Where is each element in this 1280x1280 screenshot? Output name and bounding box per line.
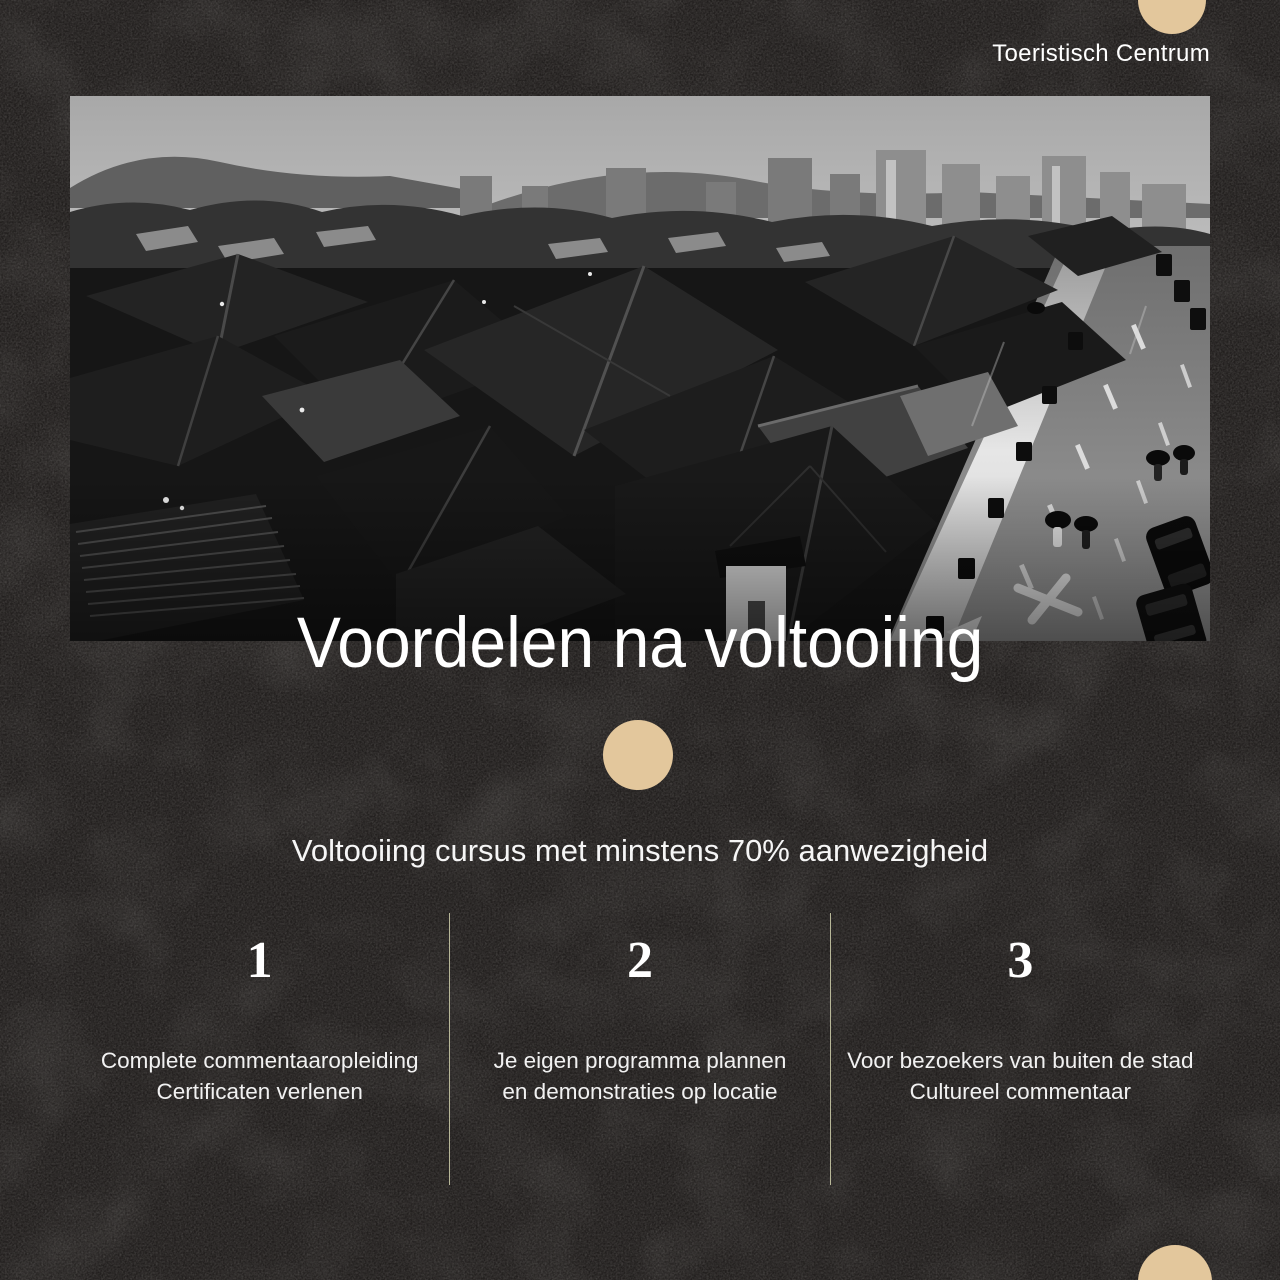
hanok-village-illustration bbox=[70, 96, 1210, 641]
page-title-text: Voordelen na voltooiing bbox=[297, 600, 984, 688]
benefit-line: en demonstraties op locatie bbox=[450, 1076, 829, 1107]
decorative-circle-top-right bbox=[1138, 0, 1206, 34]
benefit-number: 2 bbox=[450, 913, 829, 991]
brand-label: Toeristisch Centrum bbox=[992, 40, 1210, 68]
benefit-line: Je eigen programma plannen bbox=[450, 1045, 829, 1076]
subtitle: Voltooiing cursus met minstens 70% aanwe… bbox=[0, 830, 1280, 872]
decorative-circle-middle bbox=[603, 720, 673, 790]
benefit-description: Complete commentaaropleiding Certificate… bbox=[70, 1045, 449, 1107]
benefit-item-3: 3 Voor bezoekers van buiten de stad Cult… bbox=[831, 913, 1210, 1187]
benefit-number: 1 bbox=[70, 913, 449, 991]
benefit-description: Je eigen programma plannen en demonstrat… bbox=[450, 1045, 829, 1107]
slide: Toeristisch Centrum bbox=[0, 0, 1280, 1280]
column-divider bbox=[449, 913, 450, 1185]
benefits-row: 1 Complete commentaaropleiding Certifica… bbox=[70, 913, 1210, 1187]
benefit-item-2: 2 Je eigen programma plannen en demonstr… bbox=[450, 913, 829, 1187]
benefit-line: Certificaten verlenen bbox=[70, 1076, 449, 1107]
benefit-line: Cultureel commentaar bbox=[831, 1076, 1210, 1107]
page-title: Voordelen na voltooiing bbox=[0, 600, 1280, 688]
hero-photo bbox=[70, 96, 1210, 641]
column-divider bbox=[830, 913, 831, 1185]
benefit-description: Voor bezoekers van buiten de stad Cultur… bbox=[831, 1045, 1210, 1107]
decorative-circle-bottom-right bbox=[1138, 1245, 1212, 1280]
benefit-line: Complete commentaaropleiding bbox=[70, 1045, 449, 1076]
benefit-number: 3 bbox=[831, 913, 1210, 991]
benefit-line: Voor bezoekers van buiten de stad bbox=[831, 1045, 1210, 1076]
benefit-item-1: 1 Complete commentaaropleiding Certifica… bbox=[70, 913, 449, 1187]
